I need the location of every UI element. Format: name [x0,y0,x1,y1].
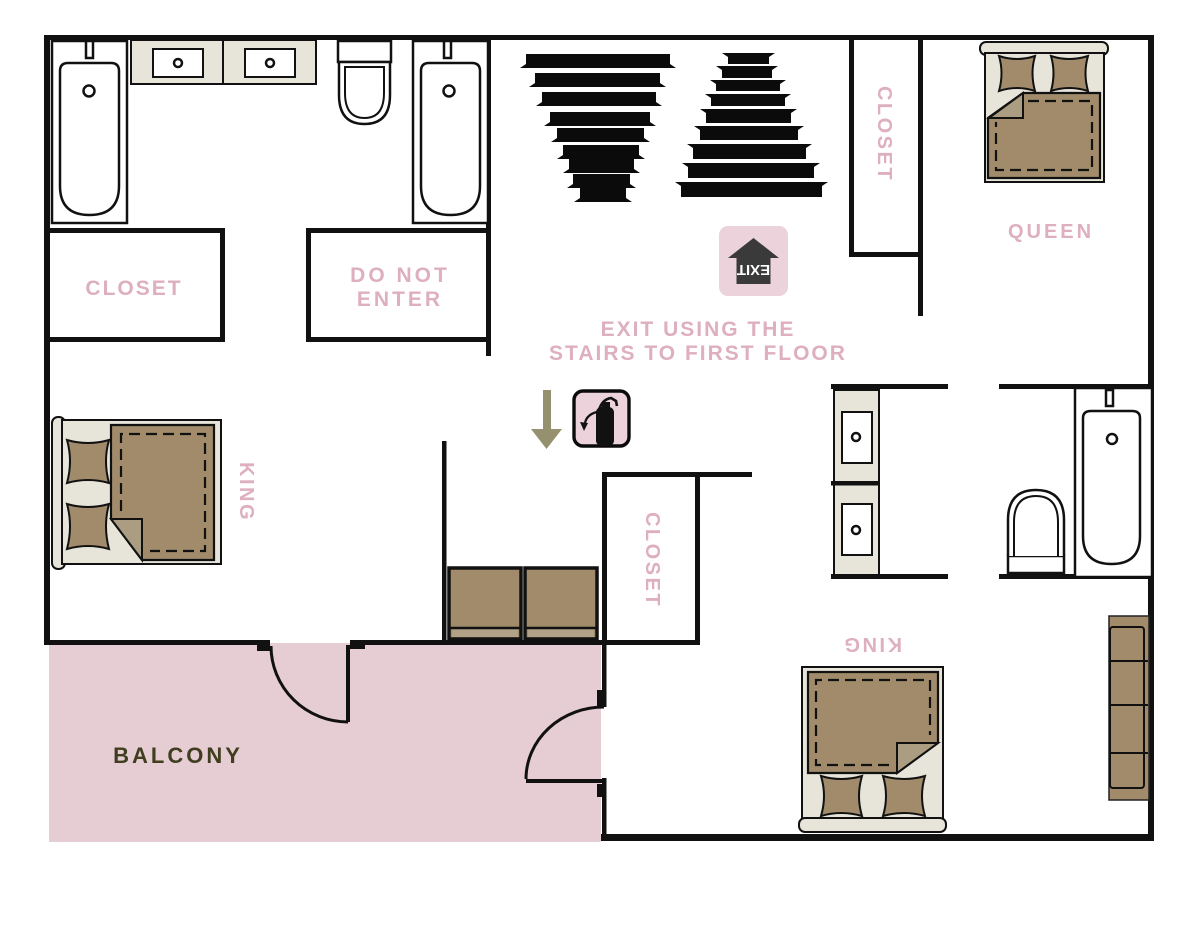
svg-text:QUEEN: QUEEN [1008,221,1094,243]
svg-text:CLOSET: CLOSET [85,277,182,300]
svg-text:EXIT USING THE: EXIT USING THE [601,318,796,341]
svg-text:BALCONY: BALCONY [113,743,243,768]
svg-text:CLOSET: CLOSET [873,86,895,182]
svg-text:DO NOT: DO NOT [350,264,450,287]
svg-text:CLOSET: CLOSET [641,512,663,608]
svg-text:EXIT: EXIT [737,261,770,278]
svg-text:KING: KING [842,633,902,655]
svg-text:STAIRS TO FIRST FLOOR: STAIRS TO FIRST FLOOR [549,342,847,365]
svg-text:ENTER: ENTER [357,288,443,311]
svg-text:KING: KING [235,462,257,522]
